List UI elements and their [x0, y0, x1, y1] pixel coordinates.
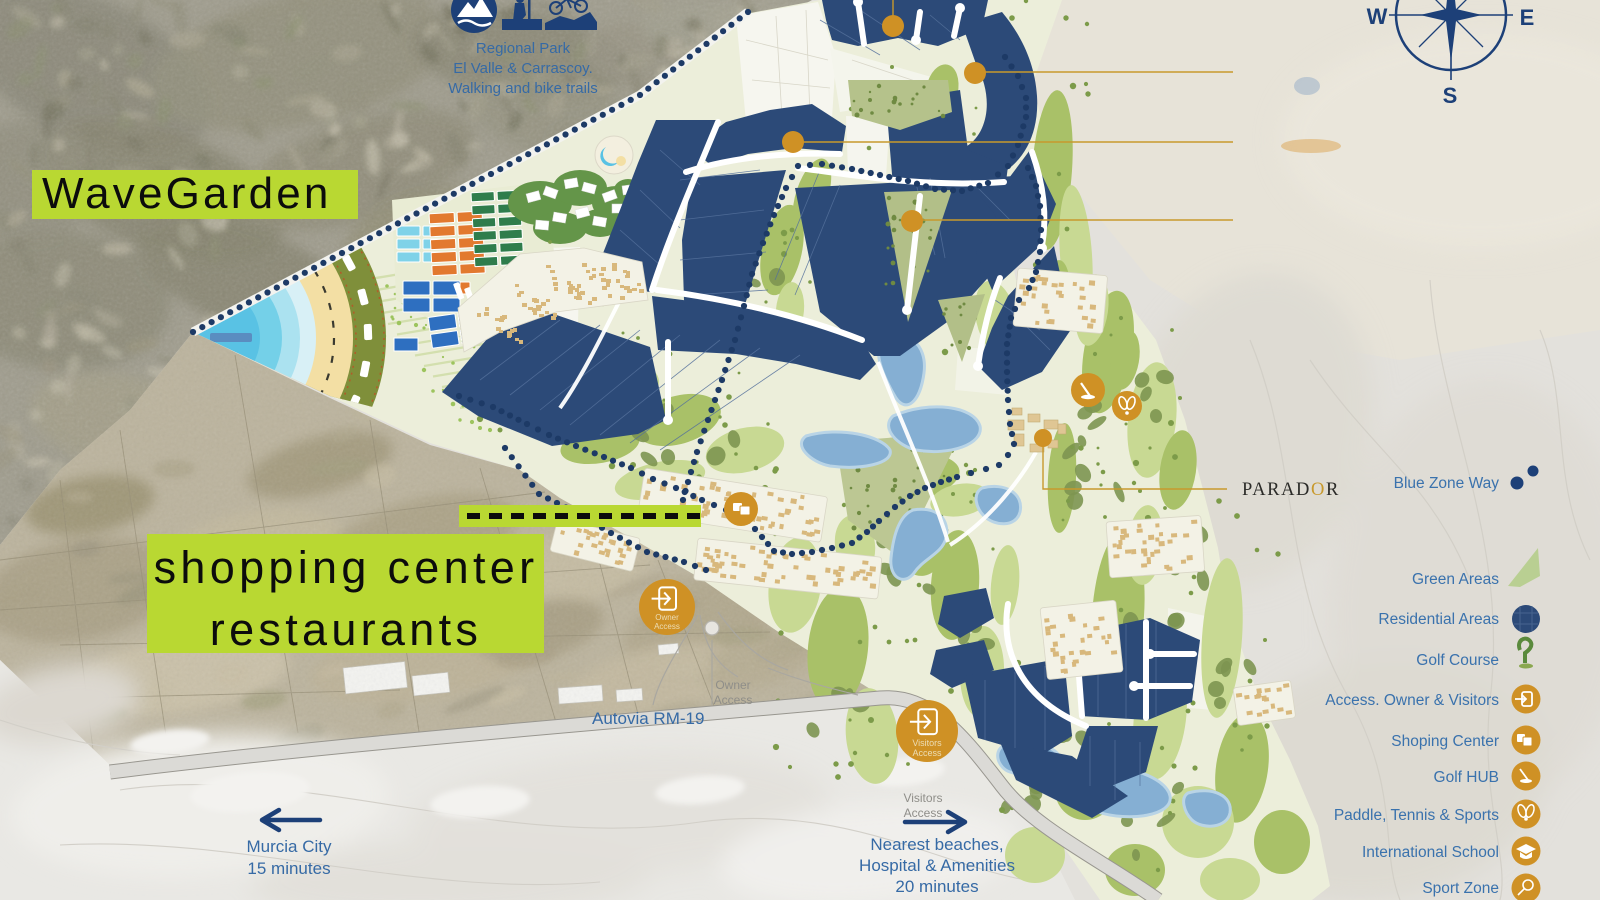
- svg-text:Owner: Owner: [655, 613, 679, 622]
- svg-text:WaveGarden: WaveGarden: [42, 169, 332, 218]
- svg-text:Paddle, Tennis & Sports: Paddle, Tennis & Sports: [1334, 807, 1499, 824]
- svg-text:Regional Park: Regional Park: [476, 40, 571, 57]
- svg-text:Murcia City: Murcia City: [246, 837, 332, 856]
- svg-text:20 minutes: 20 minutes: [895, 877, 978, 896]
- svg-text:Visitors: Visitors: [912, 738, 942, 748]
- svg-text:Sport Zone: Sport Zone: [1422, 880, 1499, 897]
- svg-text:shopping center: shopping center: [154, 542, 539, 593]
- svg-text:Autovia RM-19: Autovia RM-19: [592, 709, 704, 728]
- svg-text:Owner: Owner: [715, 678, 750, 692]
- svg-text:E: E: [1520, 5, 1535, 30]
- svg-text:W: W: [1367, 4, 1388, 29]
- svg-text:Access. Owner & Visitors: Access. Owner & Visitors: [1325, 692, 1499, 709]
- svg-text:Visitors: Visitors: [903, 791, 942, 805]
- svg-text:Green Areas: Green Areas: [1412, 571, 1499, 588]
- svg-text:Access: Access: [654, 622, 680, 631]
- svg-text:restaurants: restaurants: [210, 604, 482, 655]
- svg-text:Access: Access: [714, 693, 753, 707]
- svg-text:Golf HUB: Golf HUB: [1434, 769, 1499, 786]
- svg-text:International School: International School: [1362, 844, 1499, 861]
- svg-text:Golf Course: Golf Course: [1416, 652, 1499, 669]
- svg-text:Access: Access: [904, 806, 943, 820]
- svg-text:S: S: [1443, 83, 1458, 108]
- svg-text:15 minutes: 15 minutes: [247, 859, 330, 878]
- svg-text:El Valle & Carrascoy.: El Valle & Carrascoy.: [453, 60, 593, 77]
- svg-text:Nearest beaches,: Nearest beaches,: [870, 835, 1003, 854]
- svg-text:PARADOR: PARADOR: [1242, 480, 1340, 500]
- svg-text:Walking and bike trails: Walking and bike trails: [448, 80, 598, 97]
- svg-text:Access: Access: [912, 748, 942, 758]
- svg-text:Hospital & Amenities: Hospital & Amenities: [859, 856, 1015, 875]
- svg-text:Shoping Center: Shoping Center: [1391, 733, 1499, 750]
- svg-text:Residential Areas: Residential Areas: [1378, 611, 1499, 628]
- svg-text:Blue Zone Way: Blue Zone Way: [1394, 475, 1500, 492]
